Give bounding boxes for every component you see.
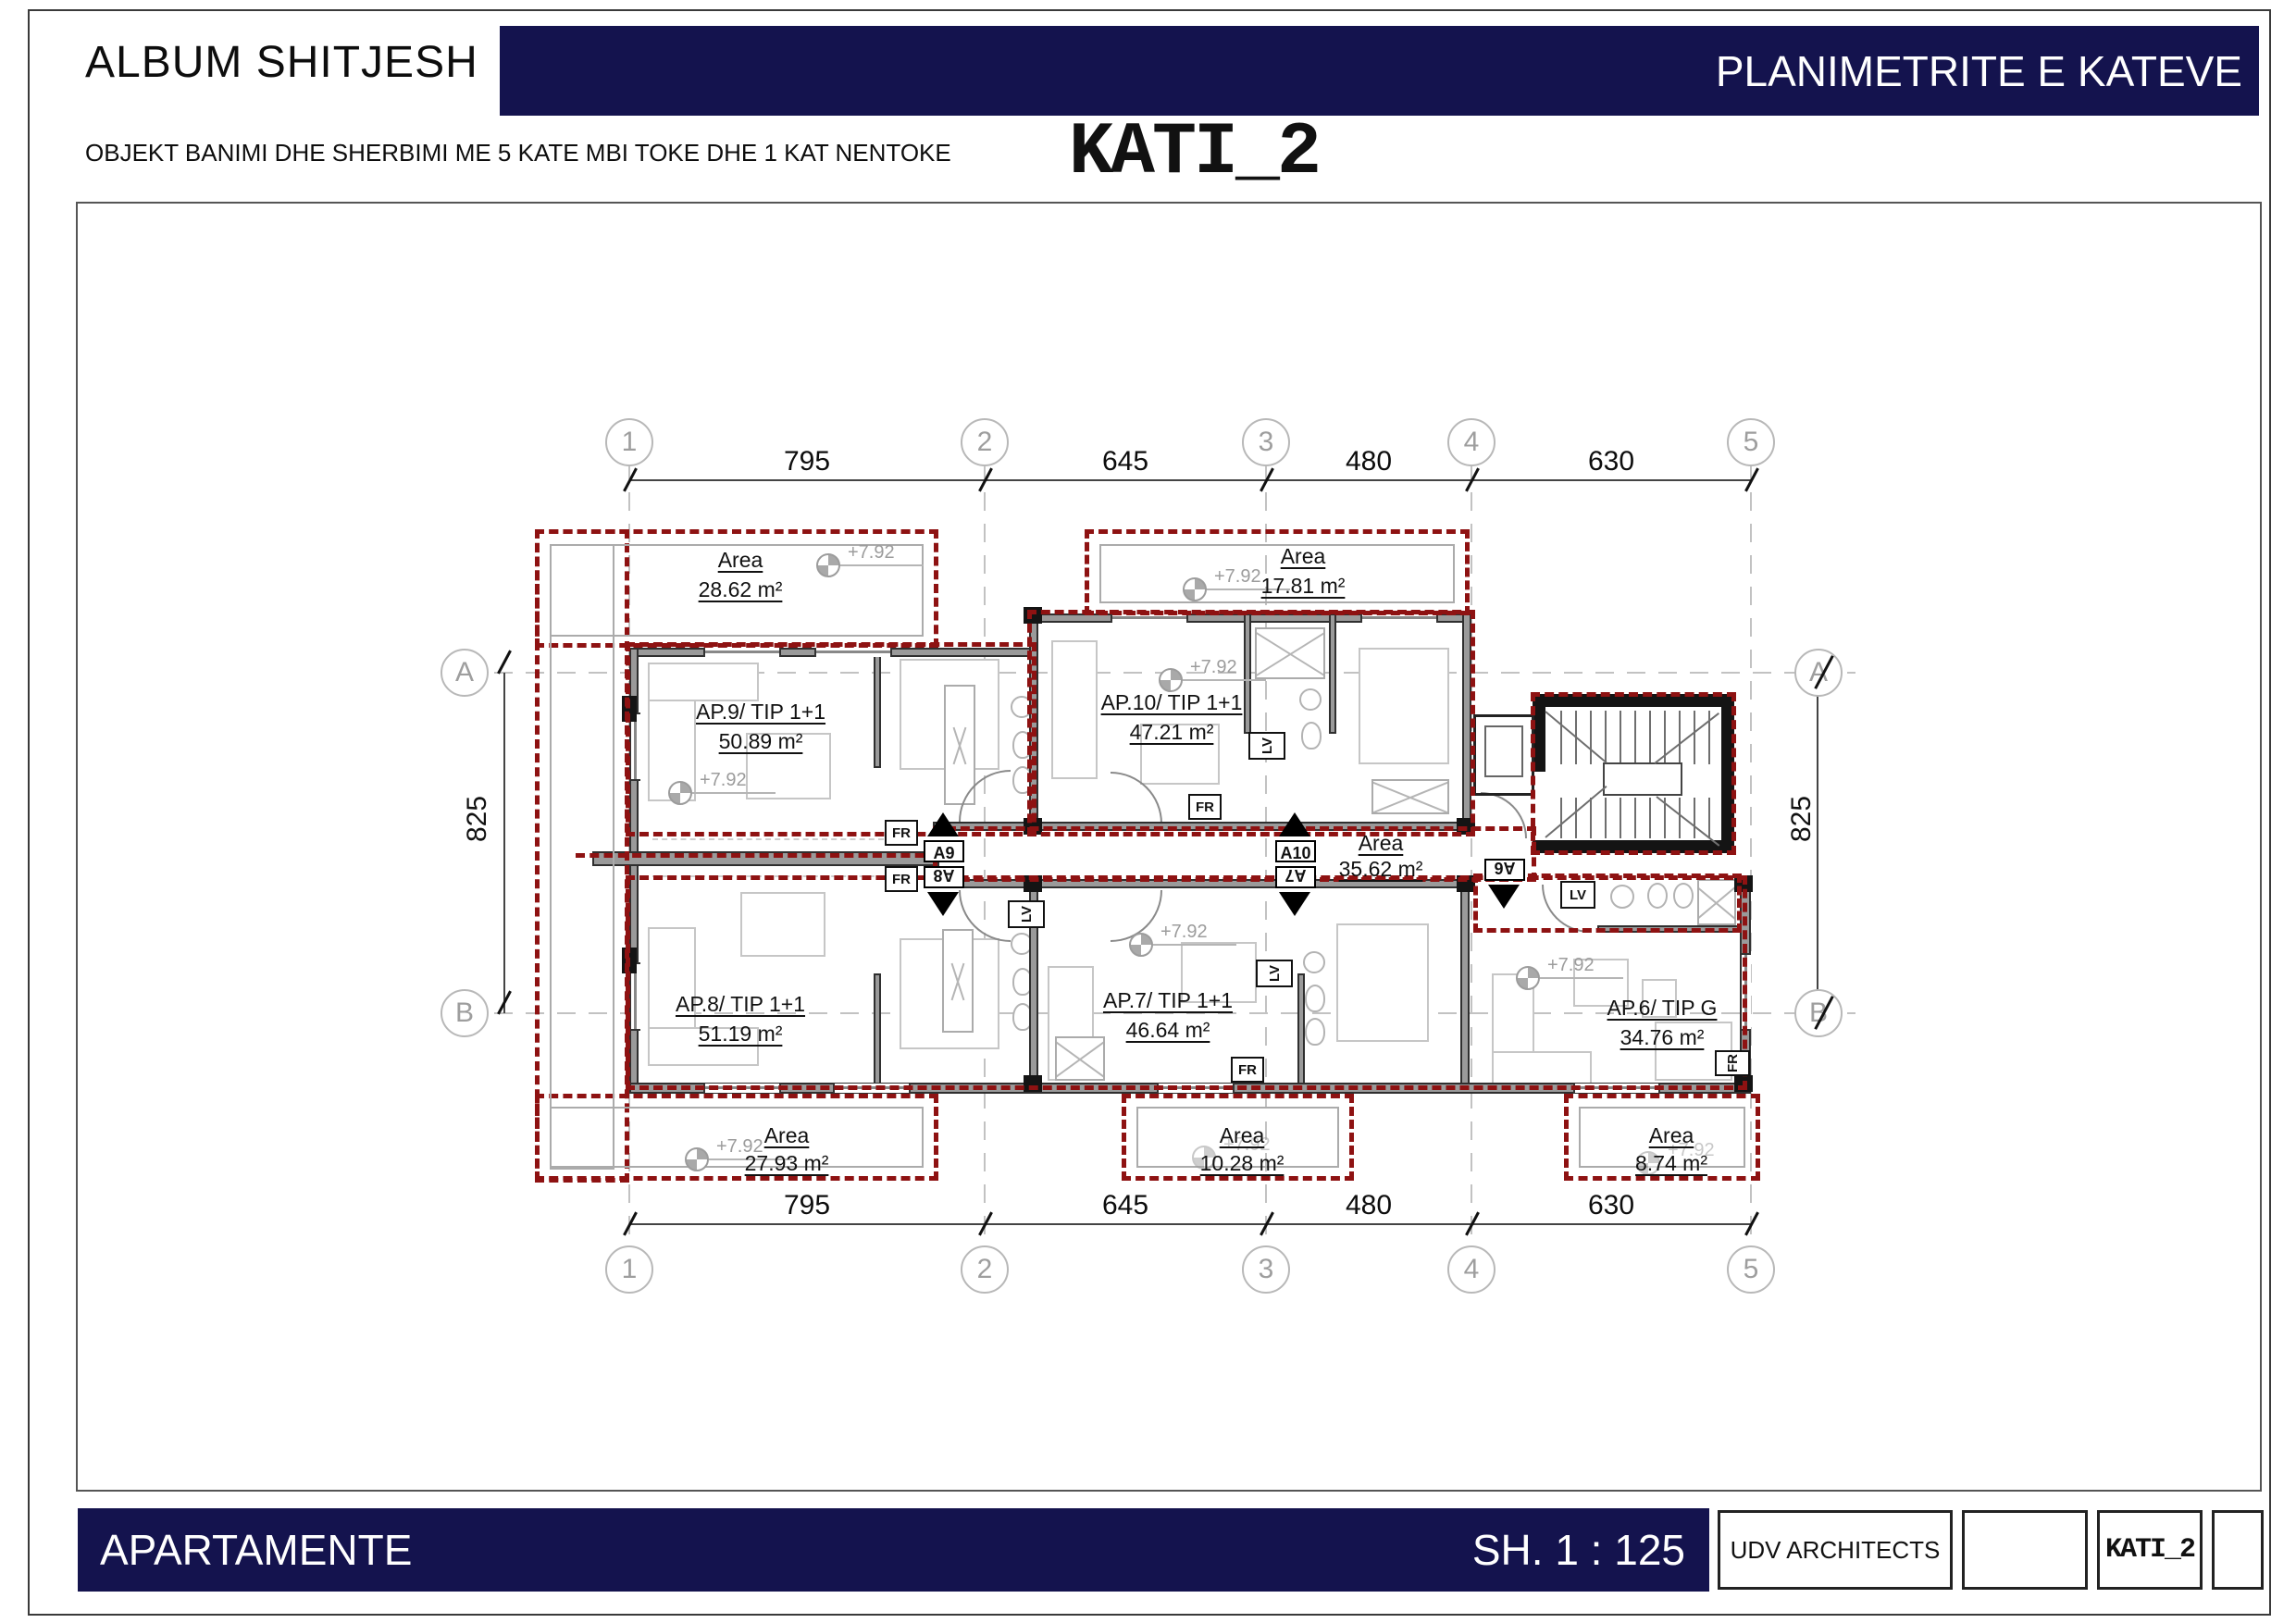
dim-top-480: 480 bbox=[1346, 446, 1392, 477]
drawing-frame bbox=[76, 202, 2262, 1492]
terrace-ap9-area-word: Area bbox=[718, 548, 763, 573]
bed bbox=[1359, 648, 1449, 764]
grid-bubble-3-bottom: 3 bbox=[1242, 1245, 1290, 1294]
terrace-ap10-area-word: Area bbox=[1281, 544, 1326, 569]
header-navy-bar: PLANIMETRITE E KATEVE bbox=[500, 26, 2259, 116]
grid-bubble-A-left: A bbox=[441, 649, 489, 697]
dim-bottom-480: 480 bbox=[1346, 1190, 1392, 1221]
terrace-ap6-area-word: Area bbox=[1649, 1123, 1694, 1148]
dim-line-bottom bbox=[629, 1223, 1751, 1225]
partition-ap10-bath-a bbox=[1244, 613, 1251, 734]
subtitle: OBJEKT BANIMI DHE SHERBIMI ME 5 KATE MBI… bbox=[85, 139, 951, 167]
partition-ap10-bath-b bbox=[1329, 613, 1336, 734]
terrace-ap7-area-value: 10.28 m² bbox=[1200, 1151, 1285, 1176]
section-label-a9: A9 bbox=[924, 840, 964, 862]
sales-album-sheet: { "header": { "album_title": "ALBUM SHIT… bbox=[0, 0, 2296, 1623]
sink bbox=[1299, 688, 1322, 711]
grid-bubble-5-bottom: 5 bbox=[1727, 1245, 1775, 1294]
section-arrow-up bbox=[1279, 812, 1310, 836]
wall-block bbox=[1457, 875, 1475, 892]
stair-wall-south bbox=[1533, 840, 1734, 853]
floor-title: KATI_2 bbox=[1055, 111, 1333, 195]
stair-wall-north bbox=[1533, 694, 1734, 707]
section-arrow-down bbox=[927, 892, 959, 916]
dim-line-top bbox=[629, 479, 1751, 481]
stair-flight-upper bbox=[1560, 711, 1716, 764]
wall-kitchen-south bbox=[1597, 925, 1740, 933]
sofa bbox=[1051, 640, 1098, 779]
section-arrow-down bbox=[1279, 892, 1310, 916]
terrace-ap8-area-word: Area bbox=[764, 1123, 810, 1148]
section-label-a6: A6 bbox=[1484, 859, 1525, 881]
grid-bubble-1-bottom: 1 bbox=[605, 1245, 653, 1294]
partition-ap7-bath bbox=[1297, 973, 1305, 1084]
partition-ap7-ap6 bbox=[1460, 879, 1470, 1084]
dim-bottom-795: 795 bbox=[784, 1190, 830, 1221]
fridge-box: FR bbox=[1715, 1050, 1750, 1076]
plans-title: PLANIMETRITE E KATEVE bbox=[1716, 46, 2259, 96]
grid-line-2 bbox=[984, 461, 986, 1247]
terrace-ap9-area-value: 28.62 m² bbox=[699, 577, 783, 602]
dining-table bbox=[740, 892, 825, 957]
window bbox=[1111, 613, 1188, 623]
partition-ap9-bedroom bbox=[874, 648, 881, 768]
window bbox=[631, 712, 640, 781]
shower bbox=[1055, 1036, 1105, 1081]
apartment-ap9-name: AP.9/ TIP 1+1 bbox=[696, 700, 825, 725]
dim-bottom-645: 645 bbox=[1102, 1190, 1148, 1221]
dim-left-825: 825 bbox=[462, 787, 493, 851]
wardrobe bbox=[1371, 779, 1449, 814]
partition-ap8-bedroom bbox=[874, 973, 881, 1084]
washer-box: LV bbox=[1248, 732, 1285, 760]
apartment-ap7-area: 46.64 m² bbox=[1126, 1018, 1210, 1043]
partition-ap9-ap10 bbox=[1029, 613, 1038, 831]
wall-block bbox=[1024, 1075, 1042, 1092]
grid-bubble-2-bottom: 2 bbox=[961, 1245, 1009, 1294]
window bbox=[703, 1084, 781, 1093]
dim-top-630: 630 bbox=[1588, 446, 1634, 477]
dim-right-825: 825 bbox=[1786, 787, 1818, 851]
apartment-ap10-area: 47.21 m² bbox=[1130, 720, 1214, 745]
window bbox=[814, 648, 892, 657]
stair-wall-east bbox=[1721, 694, 1734, 853]
dim-top-645: 645 bbox=[1102, 446, 1148, 477]
dim-bottom-630: 630 bbox=[1588, 1190, 1634, 1221]
wall-block bbox=[1024, 818, 1042, 835]
window bbox=[1157, 1084, 1235, 1093]
footer-scale-label: SH. 1 : 125 bbox=[1472, 1525, 1709, 1575]
grid-bubble-4-top: 4 bbox=[1447, 418, 1496, 466]
terrace-ap10-area-value: 17.81 m² bbox=[1261, 574, 1346, 599]
shower bbox=[1255, 627, 1325, 679]
bed bbox=[1336, 923, 1429, 1042]
section-label-a10: A10 bbox=[1275, 840, 1316, 862]
footer-narrow-box bbox=[2212, 1510, 2264, 1590]
grid-bubble-B-left: B bbox=[441, 989, 489, 1037]
washer-box: LV bbox=[1560, 881, 1595, 909]
window bbox=[833, 1084, 911, 1093]
terrace-railing bbox=[550, 544, 614, 1170]
elevator-cab bbox=[1484, 725, 1523, 777]
grid-bubble-3-top: 3 bbox=[1242, 418, 1290, 466]
footer-floor-box: KATI_2 bbox=[2097, 1510, 2203, 1590]
wall-corridor-north bbox=[933, 822, 1471, 831]
section-label-a7: A7 bbox=[1275, 866, 1316, 888]
window bbox=[1360, 613, 1438, 623]
grid-bubble-2-top: 2 bbox=[961, 418, 1009, 466]
stair-landing bbox=[1603, 762, 1682, 796]
wall-block bbox=[1024, 607, 1042, 624]
sink bbox=[1303, 951, 1325, 973]
footer-floor-code: KATI_2 bbox=[2105, 1534, 2194, 1566]
window bbox=[1573, 1084, 1660, 1093]
grid-bubble-A-right: A bbox=[1794, 649, 1843, 697]
corridor-area-word: Area bbox=[1359, 831, 1404, 856]
sofa bbox=[648, 663, 759, 701]
fridge-box: FR bbox=[885, 866, 918, 892]
washer-box: LV bbox=[1256, 960, 1293, 987]
album-title: ALBUM SHITJESH bbox=[85, 37, 478, 88]
wall-block bbox=[1734, 1075, 1753, 1092]
section-arrow-down bbox=[1488, 885, 1520, 909]
architect-label: UDV ARCHITECTS bbox=[1731, 1536, 1941, 1565]
fridge-box: FR bbox=[1188, 794, 1222, 820]
apartment-ap7-name: AP.7/ TIP 1+1 bbox=[1103, 988, 1233, 1013]
toilet bbox=[1305, 985, 1325, 1012]
footer-navy-bar: APARTAMENTE SH. 1 : 125 bbox=[78, 1508, 1709, 1592]
wall-block bbox=[622, 948, 637, 973]
architect-box: UDV ARCHITECTS bbox=[1718, 1510, 1953, 1590]
overhang-line bbox=[652, 875, 884, 877]
corridor-area-value: 35.62 m² bbox=[1339, 857, 1423, 882]
shower bbox=[1697, 879, 1736, 925]
wall-block bbox=[1734, 875, 1753, 892]
overhang-line bbox=[652, 838, 884, 840]
terrace-ap7-area-word: Area bbox=[1220, 1123, 1265, 1148]
grid-line-5 bbox=[1750, 461, 1752, 1247]
grid-bubble-1-top: 1 bbox=[605, 418, 653, 466]
washer-box: LV bbox=[1008, 900, 1045, 928]
grid-line-4 bbox=[1471, 461, 1472, 1247]
dim-line-left bbox=[503, 673, 505, 1013]
grid-bubble-5-top: 5 bbox=[1727, 418, 1775, 466]
sink bbox=[1610, 885, 1634, 909]
apartment-ap9-area: 50.89 m² bbox=[719, 729, 803, 754]
wardrobe bbox=[942, 929, 974, 1033]
footer-empty-box bbox=[1962, 1510, 2088, 1590]
section-arrow-up bbox=[927, 812, 959, 836]
section-label-a8: A8 bbox=[924, 866, 964, 888]
apartment-ap8-name: AP.8/ TIP 1+1 bbox=[676, 992, 805, 1017]
wall-block bbox=[1024, 875, 1042, 892]
window bbox=[703, 648, 781, 657]
hob bbox=[1673, 883, 1694, 909]
apartment-ap8-area: 51.19 m² bbox=[699, 1022, 783, 1047]
fridge-box: FR bbox=[885, 820, 918, 846]
terrace-ap6-area-value: 8.74 m² bbox=[1635, 1151, 1707, 1176]
apartment-ap6-area: 34.76 m² bbox=[1620, 1025, 1705, 1050]
grid-bubble-B-right: B bbox=[1794, 989, 1843, 1037]
grid-bubble-4-bottom: 4 bbox=[1447, 1245, 1496, 1294]
toilet bbox=[1301, 722, 1322, 750]
stair-wall-west bbox=[1533, 694, 1545, 772]
wall-east-top-block bbox=[1462, 613, 1471, 831]
hob bbox=[1647, 883, 1668, 909]
dim-top-795: 795 bbox=[784, 446, 830, 477]
apartment-ap10-name: AP.10/ TIP 1+1 bbox=[1101, 690, 1243, 715]
toilet bbox=[1305, 1018, 1325, 1046]
wall-block bbox=[1457, 818, 1475, 835]
footer-left-label: APARTAMENTE bbox=[78, 1525, 412, 1575]
wall-block bbox=[622, 696, 637, 722]
apartment-ap6-name: AP.6/ TIP G bbox=[1607, 996, 1718, 1021]
terrace-ap8-area-value: 27.93 m² bbox=[745, 1151, 829, 1176]
fridge-box: FR bbox=[1231, 1057, 1264, 1083]
wall-party bbox=[592, 851, 939, 866]
window bbox=[1742, 953, 1751, 1031]
